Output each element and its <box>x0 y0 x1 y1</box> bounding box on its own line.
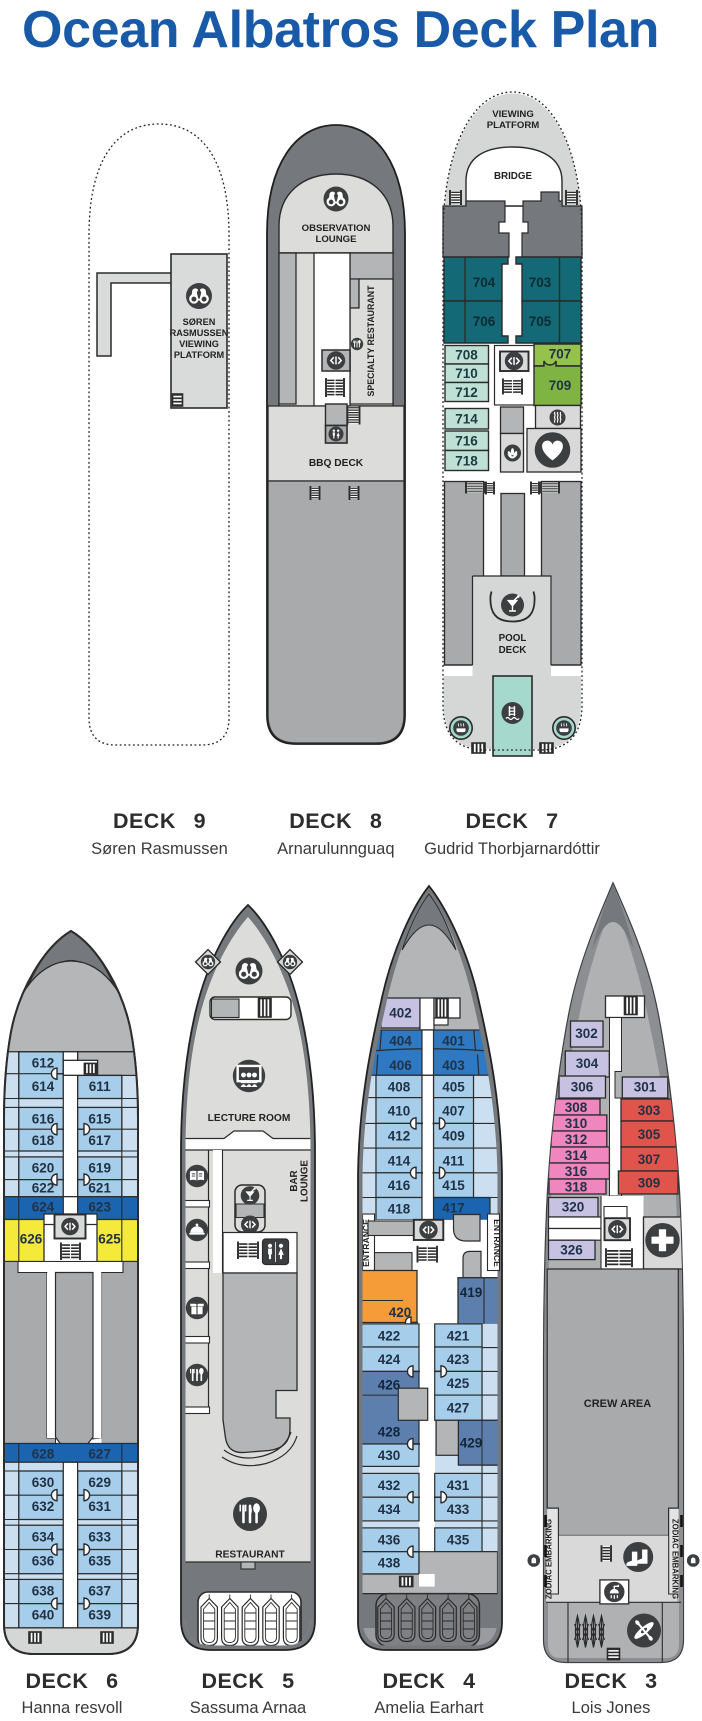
svg-text:POOL: POOL <box>499 633 527 644</box>
svg-text:635: 635 <box>88 1554 111 1569</box>
svg-text:LOUNGE: LOUNGE <box>300 1160 311 1202</box>
svg-text:425: 425 <box>447 1376 470 1391</box>
svg-text:617: 617 <box>88 1133 111 1148</box>
svg-text:VIEWING: VIEWING <box>492 109 534 120</box>
svg-text:430: 430 <box>378 1448 401 1463</box>
svg-text:432: 432 <box>378 1478 401 1493</box>
svg-text:708: 708 <box>455 348 478 363</box>
svg-text:309: 309 <box>638 1175 661 1190</box>
svg-text:411: 411 <box>443 1153 465 1168</box>
svg-text:Sassuma Arnaa: Sassuma Arnaa <box>190 1699 307 1717</box>
svg-text:706: 706 <box>473 314 496 329</box>
svg-text:406: 406 <box>389 1058 412 1073</box>
svg-text:615: 615 <box>88 1111 111 1126</box>
svg-text:OBSERVATION: OBSERVATION <box>302 223 371 234</box>
svg-text:422: 422 <box>378 1328 401 1343</box>
svg-text:630: 630 <box>32 1475 55 1490</box>
svg-text:627: 627 <box>88 1446 111 1461</box>
svg-text:410: 410 <box>388 1103 411 1118</box>
svg-text:632: 632 <box>32 1499 55 1514</box>
svg-text:Lois Jones: Lois Jones <box>572 1699 651 1717</box>
svg-text:625: 625 <box>98 1232 121 1247</box>
svg-text:707: 707 <box>549 347 572 362</box>
svg-text:301: 301 <box>634 1080 657 1095</box>
svg-text:619: 619 <box>88 1161 111 1176</box>
svg-text:PLATFORM: PLATFORM <box>174 350 225 360</box>
svg-text:401: 401 <box>442 1034 465 1049</box>
svg-text:314: 314 <box>565 1148 588 1163</box>
svg-text:709: 709 <box>549 378 572 393</box>
svg-text:614: 614 <box>32 1079 55 1094</box>
svg-text:431: 431 <box>447 1478 470 1493</box>
svg-text:718: 718 <box>455 453 478 468</box>
svg-text:433: 433 <box>447 1502 470 1517</box>
svg-text:612: 612 <box>32 1056 55 1071</box>
svg-text:DECK 3: DECK 3 <box>564 1669 657 1693</box>
svg-text:303: 303 <box>638 1103 661 1118</box>
svg-text:307: 307 <box>638 1152 661 1167</box>
svg-text:407: 407 <box>442 1103 465 1118</box>
svg-text:DECK 9: DECK 9 <box>113 809 206 833</box>
svg-text:Ocean Albatros Deck Plan: Ocean Albatros Deck Plan <box>22 1 659 59</box>
svg-text:LOUNGE: LOUNGE <box>315 234 357 245</box>
svg-text:638: 638 <box>32 1584 55 1599</box>
svg-text:305: 305 <box>638 1127 661 1142</box>
svg-text:DECK: DECK <box>499 645 527 656</box>
svg-text:622: 622 <box>32 1180 55 1195</box>
svg-text:409: 409 <box>442 1129 465 1144</box>
svg-text:703: 703 <box>529 275 552 290</box>
svg-text:DECK 4: DECK 4 <box>382 1669 475 1693</box>
svg-text:DECK 5: DECK 5 <box>201 1669 294 1693</box>
svg-text:408: 408 <box>388 1079 411 1094</box>
svg-text:404: 404 <box>389 1034 412 1049</box>
svg-text:BBQ DECK: BBQ DECK <box>309 458 364 469</box>
svg-text:704: 704 <box>473 275 496 290</box>
svg-text:628: 628 <box>32 1446 55 1461</box>
svg-text:712: 712 <box>455 385 478 400</box>
svg-text:438: 438 <box>378 1556 401 1571</box>
svg-text:402: 402 <box>389 1006 412 1021</box>
svg-text:714: 714 <box>455 412 478 427</box>
svg-text:ZODIAC EMBARKING: ZODIAC EMBARKING <box>671 1519 680 1599</box>
svg-text:429: 429 <box>460 1436 483 1451</box>
svg-text:Søren Rasmussen: Søren Rasmussen <box>91 840 228 858</box>
svg-text:640: 640 <box>32 1608 55 1623</box>
svg-text:308: 308 <box>565 1100 588 1115</box>
svg-text:DECK 6: DECK 6 <box>25 1669 118 1693</box>
svg-text:412: 412 <box>388 1129 411 1144</box>
svg-text:705: 705 <box>529 314 552 329</box>
svg-text:435: 435 <box>447 1533 470 1548</box>
svg-text:306: 306 <box>571 1080 594 1095</box>
svg-text:312: 312 <box>565 1132 588 1147</box>
svg-text:620: 620 <box>32 1161 55 1176</box>
svg-text:626: 626 <box>20 1232 43 1247</box>
svg-text:428: 428 <box>378 1425 401 1440</box>
svg-text:Hanna resvoll: Hanna resvoll <box>22 1699 123 1717</box>
svg-text:VIEWING: VIEWING <box>179 339 219 349</box>
svg-text:SØREN: SØREN <box>183 317 216 327</box>
svg-text:621: 621 <box>88 1180 111 1195</box>
svg-text:326: 326 <box>560 1243 583 1258</box>
svg-text:637: 637 <box>88 1584 111 1599</box>
svg-text:423: 423 <box>447 1352 470 1367</box>
svg-text:DECK 8: DECK 8 <box>289 809 382 833</box>
svg-text:426: 426 <box>378 1378 401 1393</box>
svg-text:320: 320 <box>562 1200 585 1215</box>
svg-text:633: 633 <box>88 1529 111 1544</box>
svg-text:436: 436 <box>378 1533 401 1548</box>
svg-text:ZODIAC EMBARKING: ZODIAC EMBARKING <box>545 1519 554 1599</box>
svg-text:304: 304 <box>576 1056 599 1071</box>
svg-text:BAR: BAR <box>289 1170 300 1191</box>
svg-text:427: 427 <box>447 1401 470 1416</box>
svg-text:Arnarulunnguaq: Arnarulunnguaq <box>277 840 394 858</box>
svg-text:417: 417 <box>442 1201 465 1216</box>
svg-text:DECK 7: DECK 7 <box>465 809 558 833</box>
svg-text:CREW AREA: CREW AREA <box>584 1398 651 1410</box>
svg-text:716: 716 <box>455 434 478 449</box>
svg-text:418: 418 <box>388 1201 411 1216</box>
svg-text:318: 318 <box>565 1179 588 1194</box>
svg-text:636: 636 <box>32 1554 55 1569</box>
svg-text:419: 419 <box>460 1285 483 1300</box>
svg-text:Gudrid Thorbjarnardóttir: Gudrid Thorbjarnardóttir <box>424 840 600 858</box>
svg-text:416: 416 <box>388 1178 411 1193</box>
svg-text:405: 405 <box>442 1079 465 1094</box>
svg-text:Amelia Earhart: Amelia Earhart <box>374 1699 484 1717</box>
svg-text:434: 434 <box>378 1502 401 1517</box>
svg-text:634: 634 <box>32 1529 55 1544</box>
svg-text:710: 710 <box>455 366 478 381</box>
svg-text:415: 415 <box>442 1178 465 1193</box>
svg-text:310: 310 <box>565 1116 588 1131</box>
svg-text:629: 629 <box>88 1475 111 1490</box>
svg-text:424: 424 <box>378 1352 401 1367</box>
svg-text:618: 618 <box>32 1133 55 1148</box>
svg-text:LECTURE ROOM: LECTURE ROOM <box>208 1113 291 1124</box>
svg-text:302: 302 <box>575 1026 598 1041</box>
svg-text:SPECIALTY RESTAURANT: SPECIALTY RESTAURANT <box>366 285 376 397</box>
svg-text:414: 414 <box>388 1153 411 1168</box>
svg-text:631: 631 <box>88 1499 111 1514</box>
svg-text:RASMUSSEN: RASMUSSEN <box>170 328 229 338</box>
svg-text:PLATFORM: PLATFORM <box>487 120 540 131</box>
svg-text:421: 421 <box>447 1328 470 1343</box>
svg-text:BRIDGE: BRIDGE <box>494 171 533 182</box>
svg-text:639: 639 <box>88 1608 111 1623</box>
svg-text:623: 623 <box>88 1200 111 1215</box>
svg-text:ENTRANCE: ENTRANCE <box>492 1219 502 1267</box>
svg-text:616: 616 <box>32 1111 55 1126</box>
svg-text:316: 316 <box>565 1164 588 1179</box>
svg-text:624: 624 <box>32 1200 55 1215</box>
svg-text:RESTAURANT: RESTAURANT <box>215 1550 285 1561</box>
svg-text:611: 611 <box>89 1079 111 1094</box>
svg-text:403: 403 <box>442 1058 465 1073</box>
